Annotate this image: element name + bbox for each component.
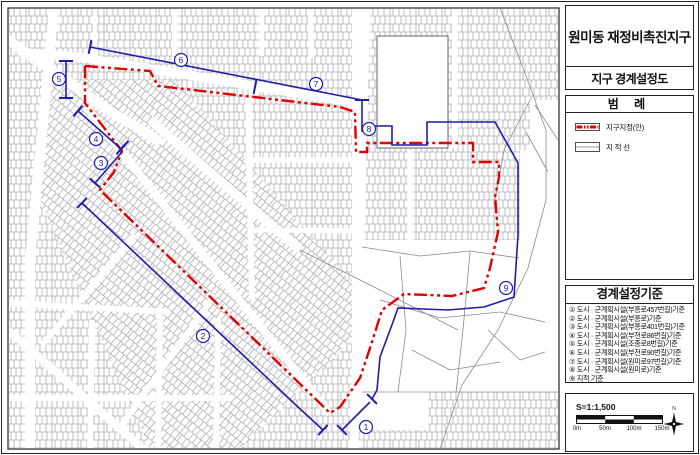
criteria-list: ① 도시 · 군계획시설(부흥로457번길)기준 ② 도시 · 군계획시설(부흥… (566, 304, 693, 383)
legend-label-cadastral: 지 적 선 (606, 142, 630, 153)
drawing-subtitle: 지구 경계설정도 (566, 67, 693, 90)
criteria-item-6: ⑥ 도시 · 군계획시설(부천로90번길)기준 (569, 349, 693, 358)
scale-bar (576, 415, 664, 424)
legend-label-district: 지구지정(안) (606, 122, 644, 133)
legend-title: 범 례 (566, 96, 693, 113)
svg-text:1: 1 (364, 422, 369, 432)
criteria-item-7: ⑦ 도시 · 군계획시설(원미로97번길)기준 (569, 358, 693, 367)
cadastral-map: 123456789 (0, 0, 562, 455)
large-parcel-block (377, 36, 448, 148)
svg-text:3: 3 (99, 158, 104, 168)
criteria-item-4: ④ 도시 · 군계획시설(부천로86번길)기준 (569, 332, 693, 341)
criteria-title: 경계설정기준 (566, 286, 693, 304)
svg-text:4: 4 (94, 134, 99, 144)
legend-item-district: 지구지정(안) (575, 121, 693, 133)
legend-item-cadastral: 지 적 선 (575, 141, 693, 153)
page: { "panel": { "title": "원미동 재정비촉진지구", "su… (0, 0, 700, 455)
compass-icon: N (663, 404, 685, 438)
criteria-item-8: ⑧ 도시 · 군계획시설(원미로)기준 (569, 366, 693, 375)
criteria-panel: 경계설정기준 ① 도시 · 군계획시설(부흥로457번길)기준 ② 도시 · 군… (565, 285, 694, 383)
map-canvas: 123456789 (0, 0, 562, 455)
legend-panel: 범 례 지구지정(안) 지 적 선 (565, 95, 694, 280)
svg-text:7: 7 (314, 79, 319, 89)
svg-text:6: 6 (179, 55, 184, 65)
compass-north-letter: N (672, 406, 676, 412)
subtitle-text: 지구 경계설정도 (591, 70, 668, 87)
district-line-swatch (575, 122, 600, 132)
scalebar-panel: S=1:1,500 0m 50m 100m 150m N (565, 393, 694, 452)
scale-tick-50: 50m (599, 426, 611, 432)
cadastral-line-swatch (575, 142, 600, 152)
criteria-item-2: ② 도시 · 군계획시설(부흥로)기준 (569, 315, 693, 324)
criteria-item-3: ③ 도시 · 군계획시설(부흥로401번길)기준 (569, 323, 693, 332)
title-panel: 원미동 재정비촉진지구 지구 경계설정도 (565, 5, 694, 90)
svg-text:5: 5 (57, 74, 62, 84)
scale-tick-100: 100m (626, 426, 641, 432)
scale-ratio-label: S=1:1,500 (576, 402, 615, 412)
criteria-item-1: ① 도시 · 군계획시설(부흥로457번길)기준 (569, 306, 693, 315)
criteria-item-5: ⑤ 도시 · 군계획시설(조종로8번길)기준 (569, 340, 693, 349)
svg-text:8: 8 (367, 124, 372, 134)
scale-tick-0: 0m (573, 426, 581, 432)
drawing-title: 원미동 재정비촉진지구 (566, 6, 693, 67)
svg-text:2: 2 (201, 331, 206, 341)
svg-text:9: 9 (504, 283, 509, 293)
title-text: 원미동 재정비촉진지구 (568, 26, 690, 46)
criteria-item-9: ⑨ 지적 기준 (569, 375, 693, 384)
